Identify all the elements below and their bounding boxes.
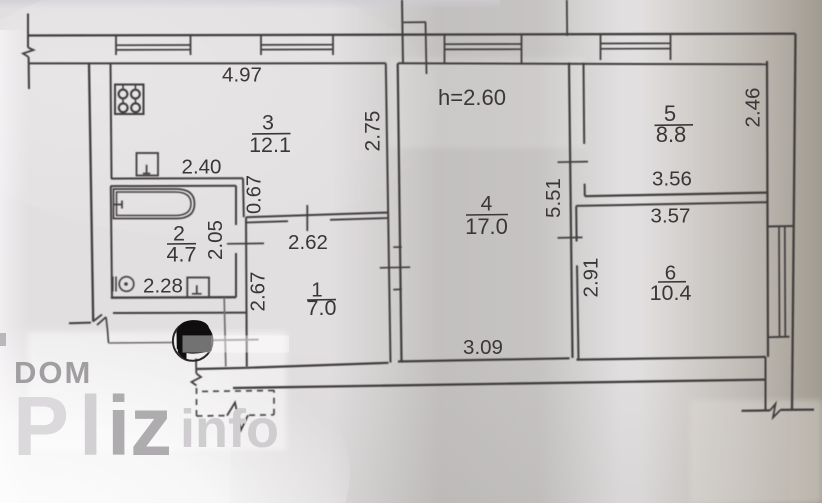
svg-text:3.57: 3.57 xyxy=(651,205,691,228)
svg-text:i: i xyxy=(107,379,130,473)
svg-text:3: 3 xyxy=(262,111,274,135)
svg-text:4: 4 xyxy=(481,193,493,216)
svg-text:3.09: 3.09 xyxy=(463,336,503,359)
svg-text:2.46: 2.46 xyxy=(742,88,765,128)
svg-text:3.56: 3.56 xyxy=(652,168,692,191)
svg-text:12.1: 12.1 xyxy=(249,133,291,157)
svg-text:0.67: 0.67 xyxy=(244,175,266,214)
svg-text:info: info xyxy=(180,399,279,459)
svg-text:2.75: 2.75 xyxy=(362,111,385,152)
svg-text:h=2.60: h=2.60 xyxy=(438,85,506,110)
svg-text:5.51: 5.51 xyxy=(542,178,565,218)
svg-text:z: z xyxy=(130,379,172,473)
svg-text:17.0: 17.0 xyxy=(465,214,508,239)
svg-text:4.7: 4.7 xyxy=(167,243,197,267)
svg-text:2.67: 2.67 xyxy=(247,272,270,312)
svg-text:2.05: 2.05 xyxy=(204,220,227,260)
svg-text:l: l xyxy=(79,379,102,473)
svg-text:2.40: 2.40 xyxy=(182,156,222,179)
svg-text:4.97: 4.97 xyxy=(222,64,262,87)
svg-text:P: P xyxy=(13,379,69,473)
svg-text:2.28: 2.28 xyxy=(143,275,183,298)
svg-text:2.62: 2.62 xyxy=(288,231,328,254)
svg-text:2.91: 2.91 xyxy=(580,258,603,298)
svg-text:10.4: 10.4 xyxy=(650,281,692,305)
